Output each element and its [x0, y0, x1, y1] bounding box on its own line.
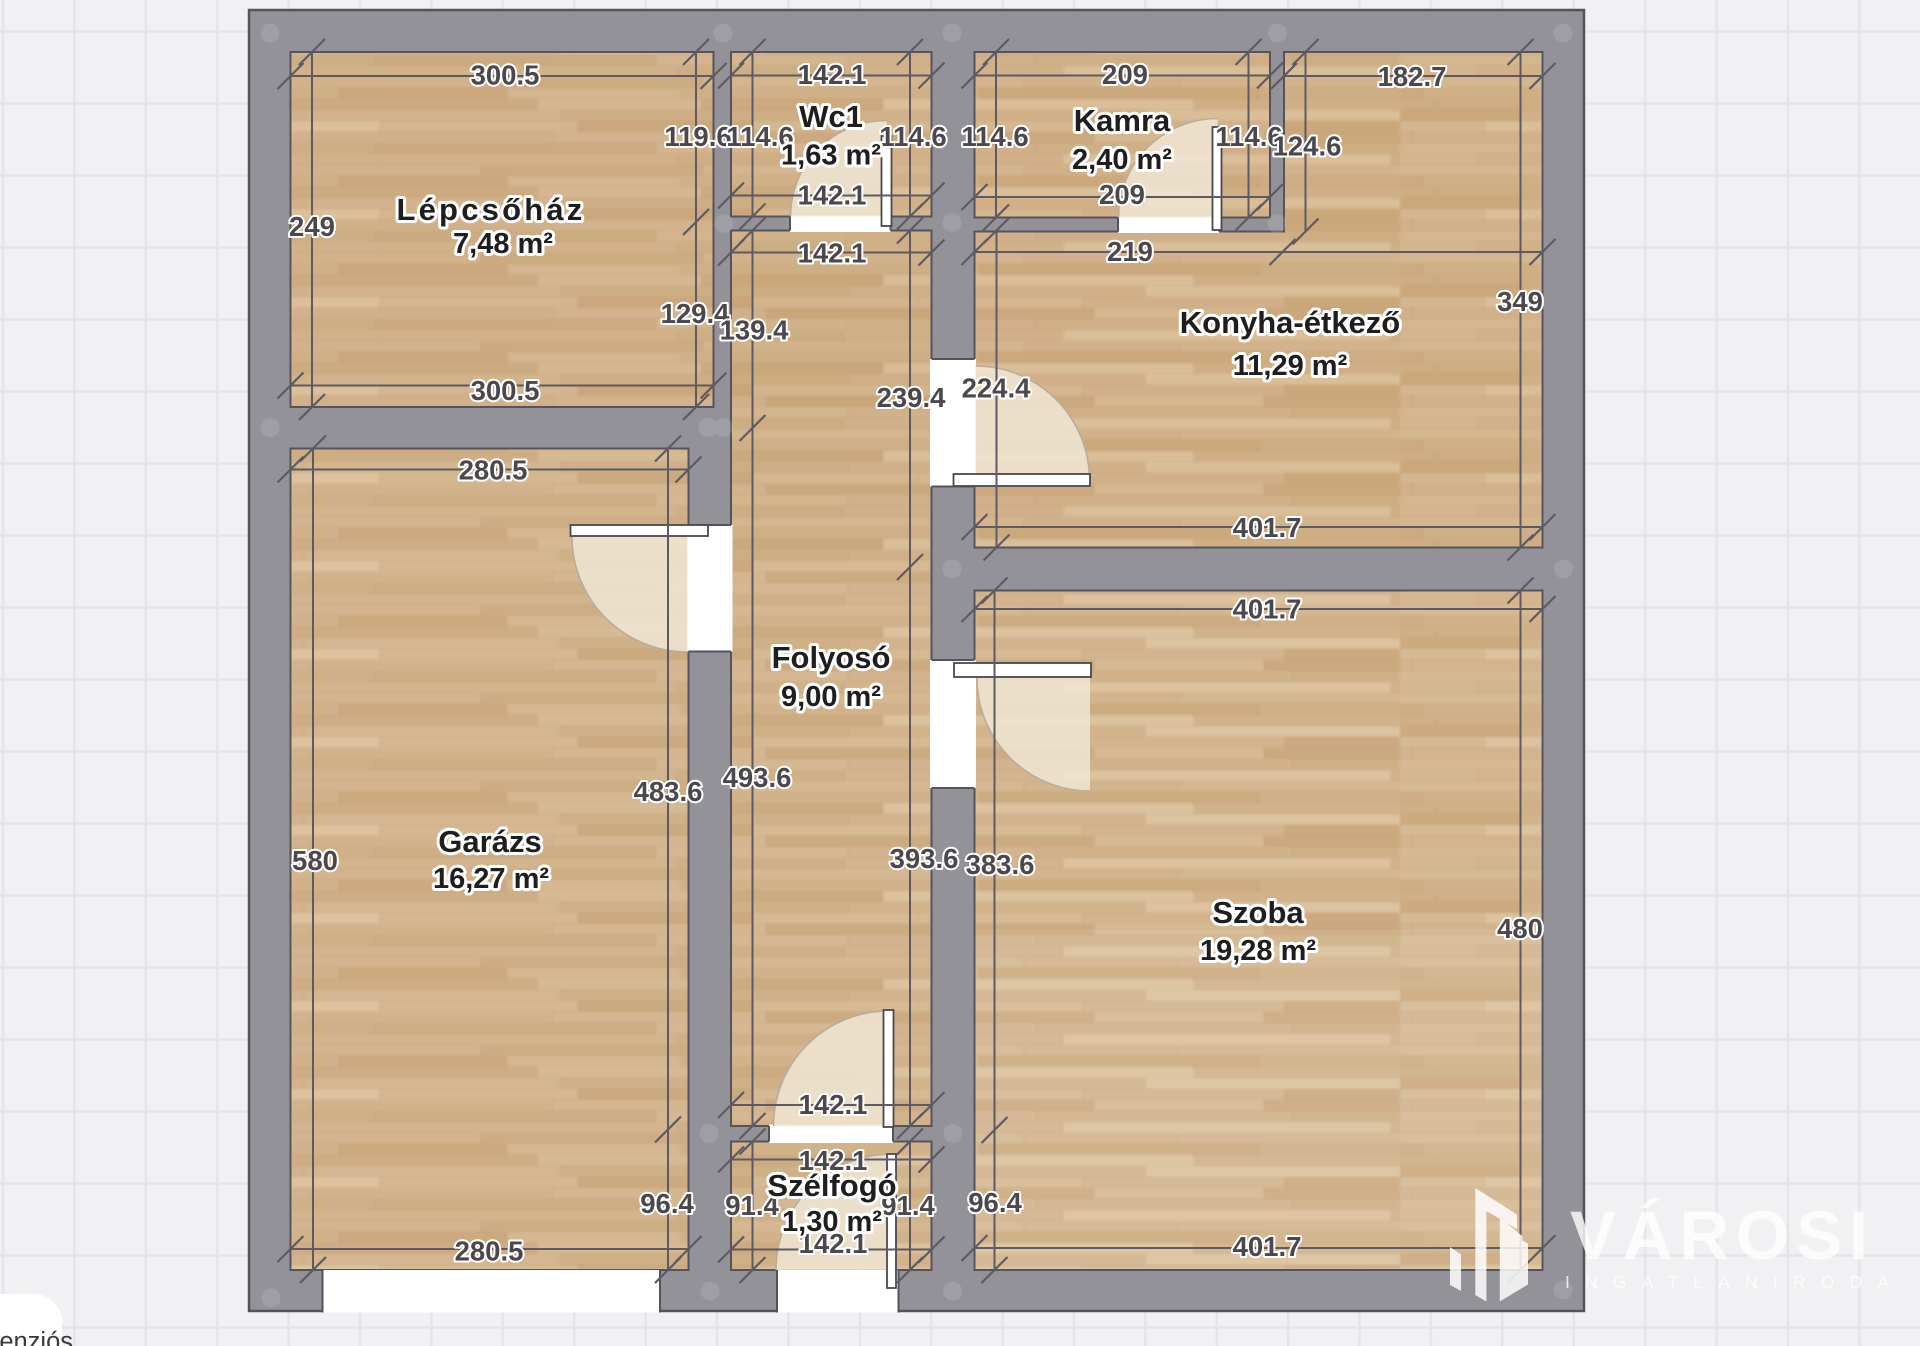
svg-text:Konyha-étkező: Konyha-étkező	[1180, 305, 1400, 340]
svg-text:182.7: 182.7	[1378, 61, 1447, 92]
svg-text:VÁROSI: VÁROSI	[1570, 1197, 1875, 1274]
svg-text:Szélfogó: Szélfogó	[767, 1168, 896, 1203]
svg-text:Folyosó: Folyosó	[772, 640, 891, 675]
svg-text:249: 249	[289, 211, 335, 242]
svg-text:142.1: 142.1	[798, 238, 867, 269]
svg-text:19,28 m²: 19,28 m²	[1200, 935, 1316, 967]
svg-text:119.6: 119.6	[664, 121, 731, 152]
svg-text:1,63 m²: 1,63 m²	[781, 140, 881, 172]
svg-text:224.4: 224.4	[962, 373, 1032, 404]
svg-text:280.5: 280.5	[459, 455, 528, 486]
svg-text:401.7: 401.7	[1233, 1231, 1302, 1262]
svg-text:142.1: 142.1	[799, 1089, 868, 1120]
svg-text:300.5: 300.5	[471, 60, 540, 91]
svg-text:300.5: 300.5	[471, 375, 540, 406]
svg-text:401.7: 401.7	[1233, 512, 1302, 543]
svg-text:393.6: 393.6	[890, 843, 959, 874]
svg-text:96.4: 96.4	[968, 1187, 1022, 1218]
svg-text:219: 219	[1107, 236, 1153, 267]
svg-text:124.6: 124.6	[1273, 131, 1342, 162]
svg-text:2,40 m²: 2,40 m²	[1072, 144, 1172, 176]
svg-text:7,48 m²: 7,48 m²	[453, 228, 553, 260]
svg-text:Szoba: Szoba	[1212, 895, 1304, 930]
svg-text:142.1: 142.1	[798, 59, 867, 90]
svg-text:INGATLANIRODA: INGATLANIRODA	[1565, 1272, 1904, 1292]
svg-text:401.7: 401.7	[1233, 594, 1302, 625]
svg-text:493.6: 493.6	[723, 762, 792, 793]
svg-text:209: 209	[1102, 59, 1148, 90]
svg-text:11,29 m²: 11,29 m²	[1233, 350, 1348, 382]
svg-text:580: 580	[292, 845, 338, 876]
svg-text:280.5: 280.5	[455, 1236, 524, 1267]
svg-text:Kamra: Kamra	[1074, 103, 1171, 138]
svg-text:349: 349	[1497, 286, 1543, 317]
svg-text:Garázs: Garázs	[438, 824, 541, 859]
svg-text:1,30 m²: 1,30 m²	[782, 1206, 882, 1238]
svg-text:383.6: 383.6	[966, 849, 1035, 880]
svg-text:209: 209	[1099, 179, 1145, 210]
svg-text:16,27 m²: 16,27 m²	[433, 863, 549, 895]
svg-text:114.6: 114.6	[961, 121, 1028, 152]
svg-text:9,00 m²: 9,00 m²	[781, 681, 881, 713]
svg-text:239.4: 239.4	[877, 382, 947, 413]
svg-text:96.4: 96.4	[640, 1188, 694, 1219]
svg-text:Lépcsőház: Lépcsőház	[396, 192, 585, 227]
svg-text:139.4: 139.4	[720, 315, 790, 346]
svg-text:142.1: 142.1	[798, 180, 867, 211]
svg-text:114.6: 114.6	[879, 121, 946, 152]
svg-text:480: 480	[1497, 913, 1543, 944]
svg-text:Wc1: Wc1	[799, 99, 863, 134]
svg-text:Dimenziós: Dimenziós	[0, 1328, 73, 1346]
svg-text:483.6: 483.6	[634, 776, 703, 807]
